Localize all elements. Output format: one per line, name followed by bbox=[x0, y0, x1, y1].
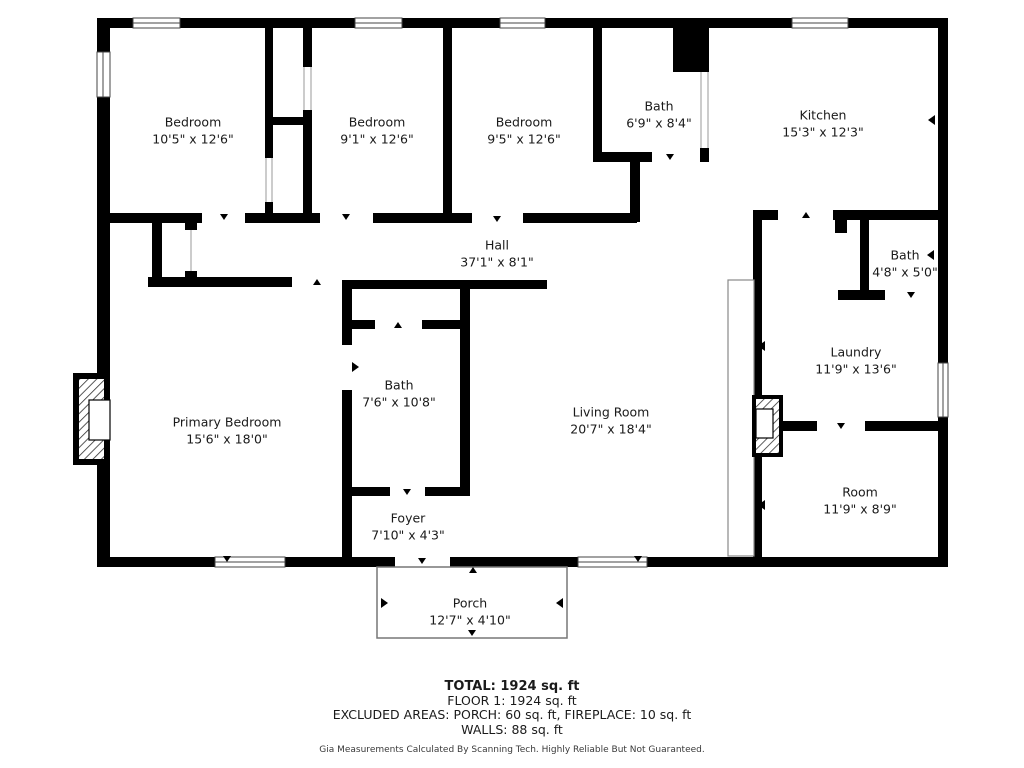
room-label-primary-bedroom: Primary Bedroom 15'6" x 18'0" bbox=[173, 415, 282, 448]
room-label-bedroom-3: Bedroom 9'5" x 12'6" bbox=[487, 115, 560, 148]
window-icon bbox=[97, 52, 110, 97]
fireplace-icon bbox=[73, 373, 110, 465]
room-dims: 4'8" x 5'0" bbox=[872, 264, 938, 281]
room-name: Bath bbox=[626, 99, 692, 116]
window-icon bbox=[133, 18, 180, 28]
room-name: Living Room bbox=[570, 405, 651, 422]
room-dims: 7'6" x 10'8" bbox=[362, 394, 435, 411]
fireplace-icon bbox=[752, 395, 783, 457]
walls-area-text: WALLS: 88 sq. ft bbox=[0, 723, 1024, 737]
window-icon bbox=[938, 363, 948, 417]
room-dims: 12'7" x 4'10" bbox=[429, 612, 510, 629]
chimney-chase bbox=[728, 280, 754, 556]
room-dims: 15'3" x 12'3" bbox=[782, 124, 863, 141]
room-name: Bedroom bbox=[340, 115, 413, 132]
room-dims: 9'1" x 12'6" bbox=[340, 131, 413, 148]
room-label-bedroom-1: Bedroom 10'5" x 12'6" bbox=[152, 115, 233, 148]
room-label-bedroom-2: Bedroom 9'1" x 12'6" bbox=[340, 115, 413, 148]
room-label-room: Room 11'9" x 8'9" bbox=[823, 485, 896, 518]
room-label-bath-top: Bath 6'9" x 8'4" bbox=[626, 99, 692, 132]
window-icon bbox=[500, 18, 545, 28]
room-label-porch: Porch 12'7" x 4'10" bbox=[429, 596, 510, 629]
room-name: Bath bbox=[362, 378, 435, 395]
room-name: Room bbox=[823, 485, 896, 502]
outer-walls-layer bbox=[97, 18, 948, 567]
room-label-foyer: Foyer 7'10" x 4'3" bbox=[371, 511, 444, 544]
floor-plan-page: Bedroom 10'5" x 12'6" Bedroom 9'1" x 12'… bbox=[0, 0, 1024, 768]
room-name: Foyer bbox=[371, 511, 444, 528]
room-name: Porch bbox=[429, 596, 510, 613]
floor-area-text: FLOOR 1: 1924 sq. ft bbox=[0, 694, 1024, 708]
total-area-text: TOTAL: 1924 sq. ft bbox=[0, 680, 1024, 694]
room-dims: 6'9" x 8'4" bbox=[626, 115, 692, 132]
room-dims: 10'5" x 12'6" bbox=[152, 131, 233, 148]
excluded-areas-text: EXCLUDED AREAS: PORCH: 60 sq. ft, FIREPL… bbox=[0, 708, 1024, 722]
room-label-hall: Hall 37'1" x 8'1" bbox=[460, 238, 533, 271]
room-dims: 11'9" x 8'9" bbox=[823, 501, 896, 518]
room-name: Primary Bedroom bbox=[173, 415, 282, 432]
disclaimer-text: Gia Measurements Calculated By Scanning … bbox=[0, 745, 1024, 755]
room-name: Bedroom bbox=[152, 115, 233, 132]
room-dims: 11'9" x 13'6" bbox=[815, 361, 896, 378]
summary-footer: TOTAL: 1924 sq. ft FLOOR 1: 1924 sq. ft … bbox=[0, 680, 1024, 755]
room-label-bath-middle: Bath 7'6" x 10'8" bbox=[362, 378, 435, 411]
room-name: Laundry bbox=[815, 345, 896, 362]
room-dims: 37'1" x 8'1" bbox=[460, 254, 533, 271]
room-dims: 7'10" x 4'3" bbox=[371, 527, 444, 544]
room-name: Hall bbox=[460, 238, 533, 255]
room-label-kitchen: Kitchen 15'3" x 12'3" bbox=[782, 108, 863, 141]
interior-walls-layer bbox=[108, 23, 948, 567]
room-dims: 15'6" x 18'0" bbox=[173, 431, 282, 448]
room-label-laundry: Laundry 11'9" x 13'6" bbox=[815, 345, 896, 378]
room-label-bath-right: Bath 4'8" x 5'0" bbox=[872, 248, 938, 281]
window-icon bbox=[792, 18, 848, 28]
room-name: Kitchen bbox=[782, 108, 863, 125]
room-name: Bedroom bbox=[487, 115, 560, 132]
windows-layer bbox=[97, 18, 948, 567]
room-label-living-room: Living Room 20'7" x 18'4" bbox=[570, 405, 651, 438]
window-icon bbox=[355, 18, 402, 28]
room-dims: 20'7" x 18'4" bbox=[570, 421, 651, 438]
room-name: Bath bbox=[872, 248, 938, 265]
room-dims: 9'5" x 12'6" bbox=[487, 131, 560, 148]
